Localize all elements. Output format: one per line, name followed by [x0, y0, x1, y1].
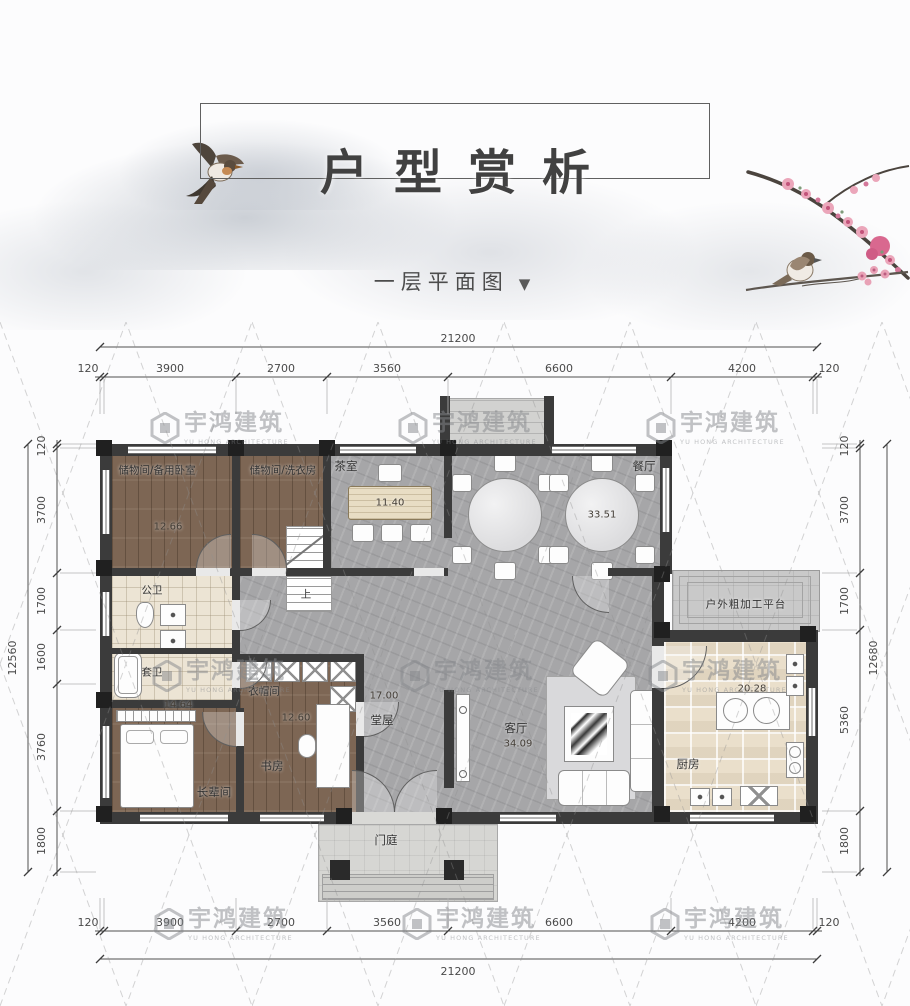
- yuhong-logo-icon: [650, 908, 680, 940]
- room-label-elder-room: 长辈间: [197, 784, 232, 800]
- column: [654, 566, 670, 582]
- room-area-kitchen: 20.28: [738, 684, 767, 695]
- dim-bottom-seg: 3560: [373, 916, 401, 929]
- door-opening: [356, 702, 364, 736]
- dim-top-seg: 3900: [156, 362, 184, 375]
- dim-left-seg: 3700: [35, 496, 48, 524]
- watermark: 宇鸿建筑YU HONG ARCHITECTURE: [402, 908, 541, 942]
- dim-bottom-seg: 3900: [156, 916, 184, 929]
- triangle-down-icon: ▼: [519, 275, 531, 293]
- window: [128, 446, 216, 454]
- room-label-storage-laundry: 储物间/洗衣房: [250, 463, 317, 478]
- chair: [591, 454, 613, 472]
- column: [654, 806, 670, 822]
- dim-left-seg: 1700: [35, 587, 48, 615]
- watermark: 宇鸿建筑YU HONG ARCHITECTURE: [150, 412, 289, 446]
- chair: [410, 524, 432, 542]
- window: [552, 446, 636, 454]
- desk-chair: [298, 734, 316, 758]
- back-porch-post: [440, 396, 450, 444]
- closet-rail: [116, 710, 196, 722]
- chair: [452, 474, 472, 492]
- chair: [635, 546, 655, 564]
- window: [102, 592, 110, 636]
- window: [808, 688, 816, 736]
- room-label-living: 客厅: [505, 720, 528, 736]
- dim-top-seg: 2700: [267, 362, 295, 375]
- room-area-dining: 33.51: [588, 510, 617, 521]
- chair: [494, 454, 516, 472]
- room-area-tea-room: 11.40: [376, 498, 405, 509]
- bathtub: [114, 652, 142, 698]
- column: [96, 806, 112, 822]
- wall: [112, 648, 232, 654]
- dining-table: [468, 478, 542, 552]
- toilet: [136, 602, 154, 628]
- room-label-public-bath: 公卫: [142, 583, 163, 598]
- watermark-en: YU HONG ARCHITECTURE: [684, 934, 789, 942]
- chair: [352, 524, 374, 542]
- dim-top-seg: 6600: [545, 362, 573, 375]
- column: [336, 808, 352, 824]
- door-opening: [196, 568, 230, 576]
- door-opening: [236, 712, 244, 746]
- room-area-storage-bedroom: 12.66: [154, 522, 183, 533]
- mountain-wash: [0, 200, 250, 330]
- column: [440, 440, 456, 456]
- dim-right-seg: 1700: [838, 587, 851, 615]
- dim-right-seg: 120: [838, 436, 851, 457]
- appliance: [786, 676, 804, 696]
- sink-basin: [753, 697, 780, 724]
- yuhong-logo-icon: [398, 412, 428, 444]
- column: [96, 440, 112, 456]
- chair: [452, 546, 472, 564]
- window: [102, 726, 110, 798]
- room-label-dining: 餐厅: [633, 458, 656, 474]
- room-label-platform: 户外粗加工平台: [706, 597, 787, 612]
- dim-top-total: 21200: [441, 332, 476, 345]
- back-porch-post: [544, 396, 554, 444]
- yuhong-logo-icon: [154, 908, 184, 940]
- room-label-hall: 堂屋: [371, 712, 394, 728]
- room-label-tea-room: 茶室: [335, 458, 358, 474]
- window: [690, 814, 774, 822]
- counter-sink: [690, 788, 710, 806]
- room-label-study: 书房: [261, 758, 284, 774]
- prep-table: [740, 786, 778, 806]
- watermark-en: YU HONG ARCHITECTURE: [680, 438, 785, 446]
- page-subtitle: 一层平面图▼: [374, 266, 531, 296]
- chair: [549, 474, 569, 492]
- dim-bottom-seg: 4200: [728, 916, 756, 929]
- page-title: 户型赏析: [320, 133, 616, 203]
- wall: [660, 630, 818, 642]
- yuhong-logo-icon: [402, 908, 432, 940]
- window: [500, 814, 556, 822]
- dim-bottom-seg: 2700: [267, 916, 295, 929]
- column: [96, 692, 112, 708]
- window: [662, 468, 670, 532]
- dim-top-seg: 120: [819, 362, 840, 375]
- wall: [608, 568, 660, 576]
- watermark-cn: 宇鸿建筑: [680, 412, 785, 435]
- pillow: [160, 730, 188, 744]
- dim-top-seg: 4200: [728, 362, 756, 375]
- watermark-cn: 宇鸿建筑: [684, 908, 789, 931]
- dim-bottom-seg: 120: [78, 916, 99, 929]
- dim-left-seg: 1600: [35, 643, 48, 671]
- dim-bottom-total: 21200: [441, 965, 476, 978]
- column: [319, 440, 335, 456]
- column: [228, 440, 244, 456]
- door-opening: [652, 646, 664, 688]
- entry-door-opening: [352, 812, 436, 824]
- column: [436, 808, 452, 824]
- sink-basin: [723, 698, 748, 723]
- room-label-storage-bedroom: 储物间/备用卧室: [118, 463, 195, 478]
- back-porch-steps: [448, 398, 548, 446]
- tv-wall: [444, 690, 454, 788]
- room-area-hall: 17.00: [370, 691, 399, 702]
- room-label-suite-bath: 套卫: [142, 665, 163, 680]
- console-knob: [459, 706, 467, 714]
- door-opening: [232, 600, 240, 630]
- perched-bird-branch: [742, 238, 910, 308]
- wall: [240, 654, 364, 662]
- door-opening: [414, 568, 444, 576]
- burner: [789, 746, 801, 758]
- burner: [789, 762, 801, 774]
- dim-bottom-seg: 120: [819, 916, 840, 929]
- column: [654, 622, 670, 638]
- wall: [232, 456, 240, 568]
- room-label-cloakroom: 衣帽间: [248, 684, 280, 699]
- watermark: 宇鸿建筑YU HONG ARCHITECTURE: [154, 908, 293, 942]
- dim-left-total: 12560: [6, 641, 19, 676]
- dim-top-seg: 120: [78, 362, 99, 375]
- room-label-kitchen: 厨房: [677, 756, 700, 772]
- dim-right-seg: 3700: [838, 496, 851, 524]
- porch-column: [444, 860, 464, 880]
- chair: [494, 562, 516, 580]
- yuhong-logo-icon: [150, 412, 180, 444]
- window: [102, 470, 110, 534]
- chair: [381, 524, 403, 542]
- stair-up-label: 上: [301, 587, 312, 602]
- watermark: 宇鸿建筑YU HONG ARCHITECTURE: [650, 908, 789, 942]
- poster: 户型赏析 一层平面图▼: [0, 0, 910, 1006]
- wall: [444, 456, 452, 538]
- watermark-en: YU HONG ARCHITECTURE: [188, 934, 293, 942]
- washbasin: [160, 604, 186, 626]
- column: [656, 440, 672, 456]
- watermark-cn: 宇鸿建筑: [184, 412, 289, 435]
- window: [140, 814, 228, 822]
- appliance: [786, 654, 804, 674]
- chair: [635, 474, 655, 492]
- chair: [549, 546, 569, 564]
- pillow: [126, 730, 154, 744]
- column: [800, 626, 816, 642]
- sofa: [558, 770, 630, 806]
- room-area-elder-room: 14.64: [164, 700, 193, 711]
- dim-left-seg: 1800: [35, 827, 48, 855]
- dim-right-seg: 5360: [838, 706, 851, 734]
- dim-left-seg: 120: [35, 436, 48, 457]
- desk: [316, 704, 350, 788]
- dim-right-seg: 1800: [838, 827, 851, 855]
- console-knob: [459, 770, 467, 778]
- dim-left-seg: 3760: [35, 733, 48, 761]
- dim-right-total: 12680: [867, 641, 880, 676]
- dim-bottom-seg: 6600: [545, 916, 573, 929]
- door-opening: [252, 568, 286, 576]
- watermark-en: YU HONG ARCHITECTURE: [436, 934, 541, 942]
- dim-top-seg: 3560: [373, 362, 401, 375]
- subtitle-text: 一层平面图: [374, 270, 509, 294]
- room-area-living: 34.09: [504, 739, 533, 750]
- window: [340, 446, 416, 454]
- watermark-cn: 宇鸿建筑: [188, 908, 293, 931]
- room-label-porch: 门庭: [375, 832, 398, 848]
- wall: [323, 456, 331, 568]
- watermark-cn: 宇鸿建筑: [436, 908, 541, 931]
- coffee-table-art: [571, 713, 607, 755]
- column: [96, 560, 112, 576]
- porch-column: [330, 860, 350, 880]
- window: [260, 814, 324, 822]
- wall: [652, 574, 664, 812]
- door-opening: [232, 662, 240, 688]
- column: [800, 806, 816, 822]
- counter-sink: [712, 788, 732, 806]
- chair: [378, 464, 402, 482]
- room-area-study: 12.60: [282, 713, 311, 724]
